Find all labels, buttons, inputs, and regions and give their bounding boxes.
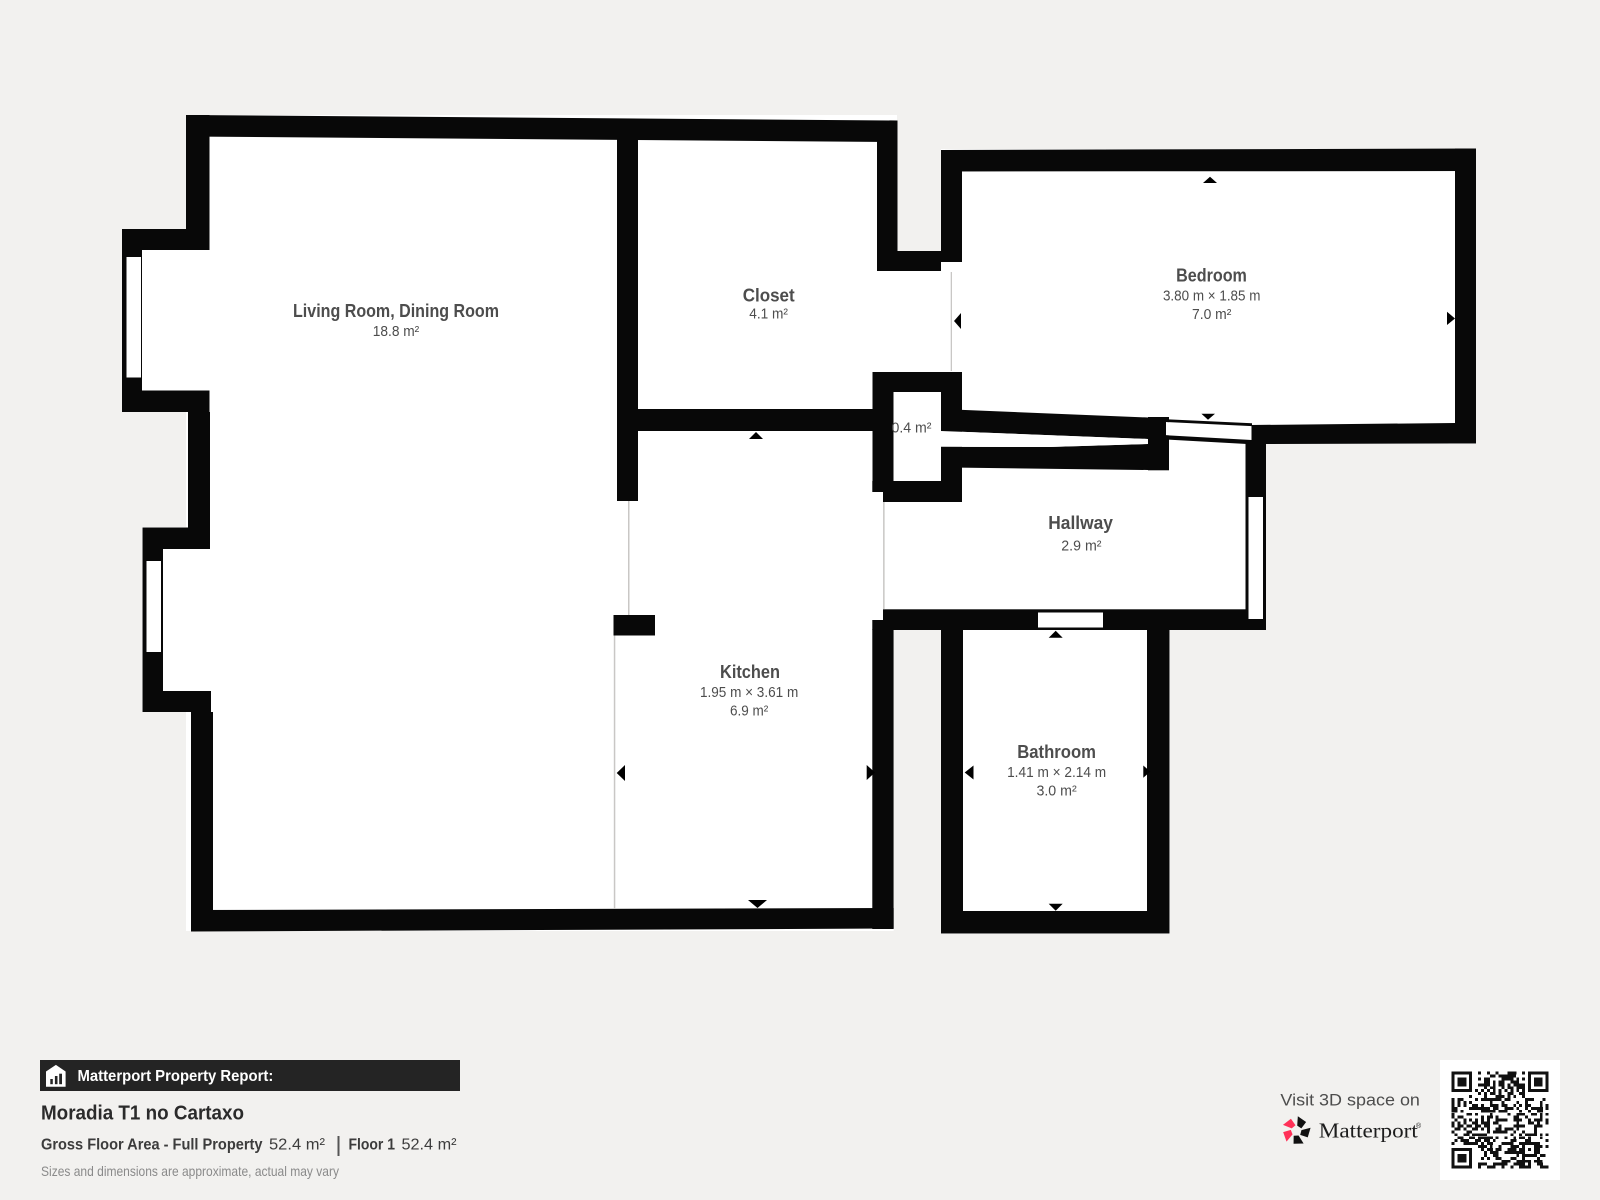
svg-text:3.80 m × 1.85 m: 3.80 m × 1.85 m	[1163, 289, 1261, 305]
svg-text:Living Room, Dining Room: Living Room, Dining Room	[293, 301, 499, 321]
svg-text:7.0 m²: 7.0 m²	[1192, 307, 1232, 323]
svg-text:Bedroom: Bedroom	[1176, 265, 1247, 285]
svg-text:18.8 m²: 18.8 m²	[373, 324, 420, 340]
svg-text:Sizes and dimensions are appro: Sizes and dimensions are approximate, ac…	[41, 1163, 339, 1179]
svg-text:Moradia T1 no Cartaxo: Moradia T1 no Cartaxo	[41, 1102, 244, 1125]
svg-text:Closet: Closet	[743, 286, 795, 306]
svg-text:3.0 m²: 3.0 m²	[1036, 784, 1077, 800]
svg-text:Floor 1: Floor 1	[349, 1137, 396, 1154]
svg-text:Matterport: Matterport	[1319, 1119, 1418, 1143]
svg-text:Bathroom: Bathroom	[1017, 742, 1096, 762]
svg-text:Matterport Property Report:: Matterport Property Report:	[78, 1068, 274, 1085]
svg-text:Visit 3D space on: Visit 3D space on	[1280, 1092, 1420, 1110]
svg-text:®: ®	[1416, 1122, 1422, 1130]
svg-text:52.4 m²: 52.4 m²	[269, 1137, 326, 1154]
svg-text:Kitchen: Kitchen	[720, 662, 780, 682]
svg-text:Gross Floor Area - Full Proper: Gross Floor Area - Full Property	[41, 1137, 263, 1154]
svg-text:6.9 m²: 6.9 m²	[730, 704, 769, 720]
svg-text:4.1 m²: 4.1 m²	[749, 307, 788, 323]
svg-text:Hallway: Hallway	[1048, 513, 1113, 533]
svg-text:2.9 m²: 2.9 m²	[1061, 539, 1101, 555]
svg-text:52.4 m²: 52.4 m²	[402, 1137, 458, 1154]
svg-text:1.95 m × 3.61 m: 1.95 m × 3.61 m	[700, 685, 798, 701]
svg-text:1.41 m × 2.14 m: 1.41 m × 2.14 m	[1007, 765, 1106, 781]
svg-text:0.4 m²: 0.4 m²	[892, 421, 932, 437]
